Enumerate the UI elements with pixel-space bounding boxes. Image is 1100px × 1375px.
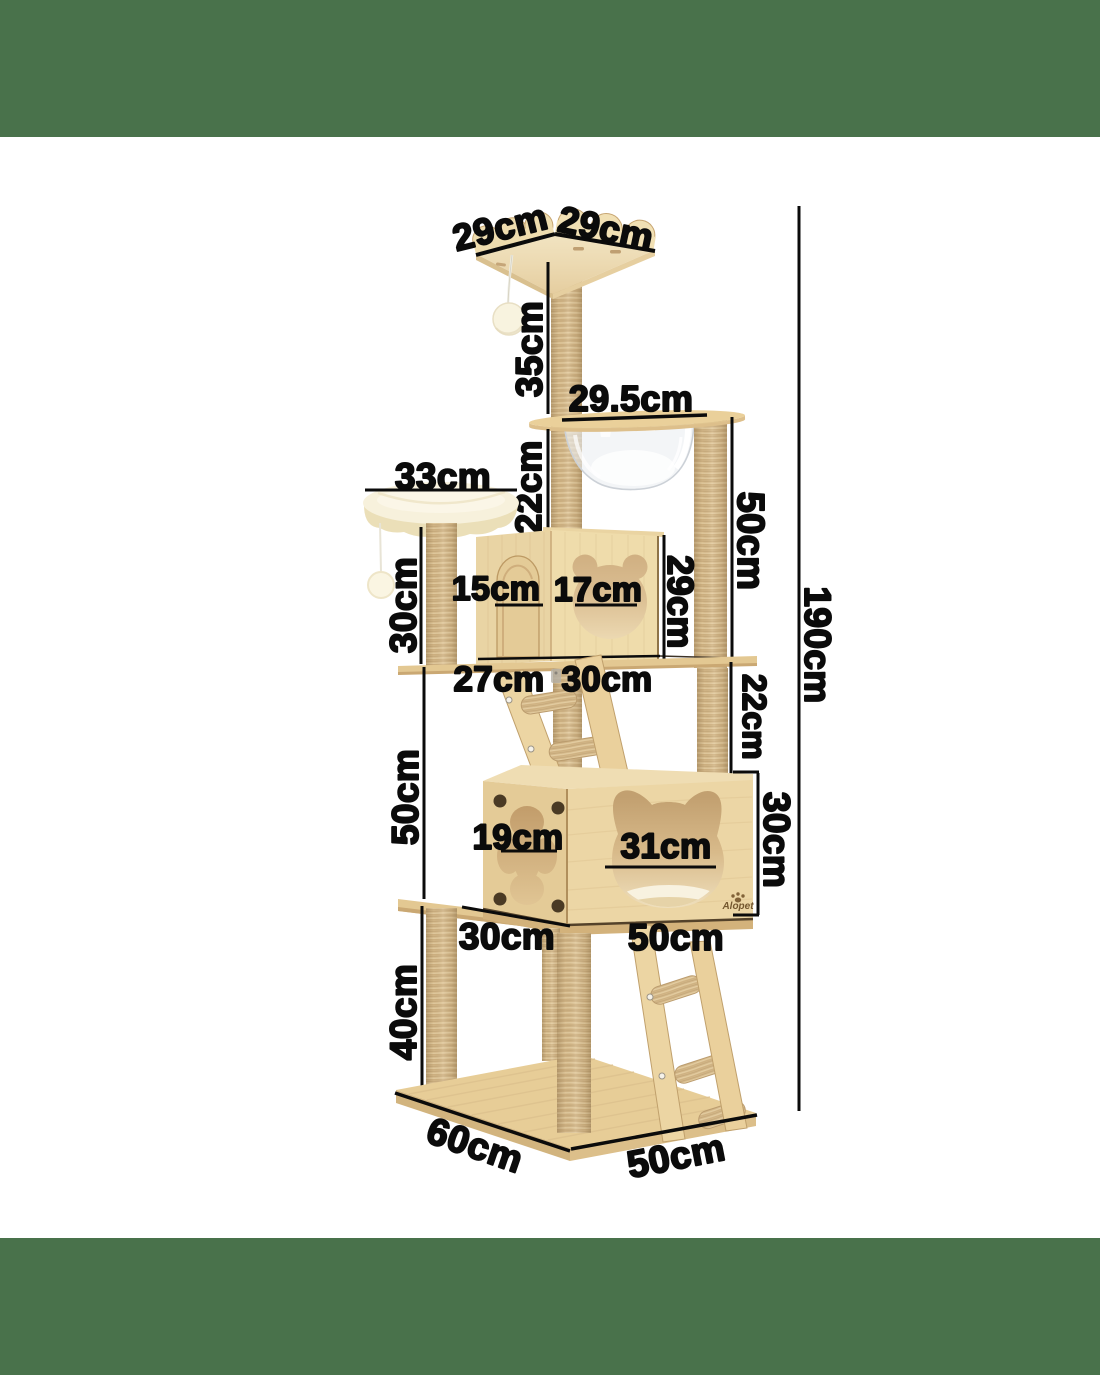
svg-text:22cm: 22cm	[736, 674, 773, 760]
svg-text:Alopet: Alopet	[721, 901, 754, 912]
svg-text:35cm: 35cm	[509, 301, 550, 397]
svg-text:30cm: 30cm	[383, 557, 424, 653]
svg-text:29cm: 29cm	[660, 555, 701, 649]
svg-text:15cm: 15cm	[452, 570, 541, 608]
svg-text:22cm: 22cm	[508, 440, 549, 534]
svg-text:17cm: 17cm	[554, 571, 643, 609]
svg-text:50cm: 50cm	[628, 917, 724, 958]
svg-text:30cm: 30cm	[561, 660, 652, 699]
svg-text:190cm: 190cm	[797, 586, 838, 703]
svg-text:50cm: 50cm	[385, 749, 426, 845]
svg-text:31cm: 31cm	[620, 827, 711, 866]
svg-text:30cm: 30cm	[459, 916, 555, 957]
svg-text:33cm: 33cm	[395, 456, 491, 497]
svg-text:30cm: 30cm	[756, 792, 797, 888]
svg-text:40cm: 40cm	[383, 964, 424, 1060]
svg-text:50cm: 50cm	[729, 492, 771, 591]
svg-text:29.5cm: 29.5cm	[569, 378, 694, 419]
svg-text:27cm: 27cm	[453, 660, 544, 699]
